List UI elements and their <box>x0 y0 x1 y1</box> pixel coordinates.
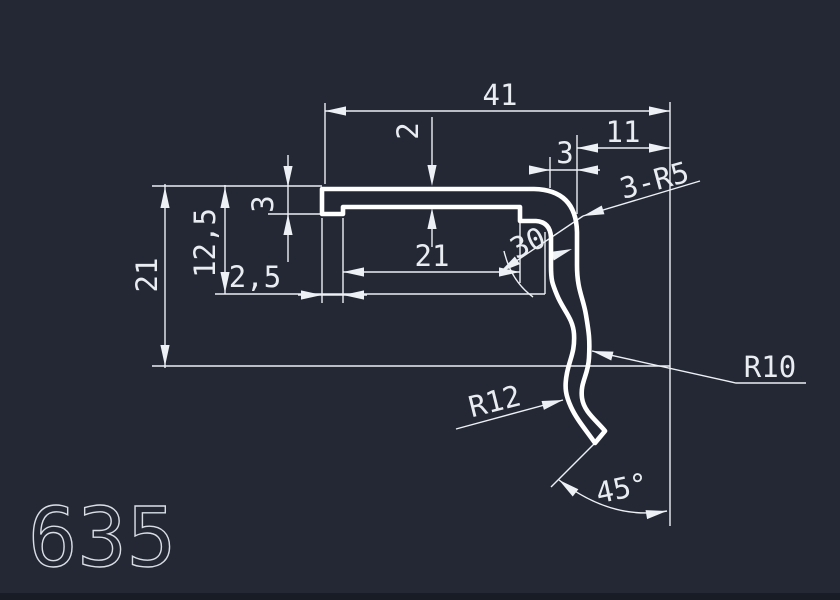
dim-21-mid-label: 21 <box>415 239 450 273</box>
dim-21-left-label: 21 <box>130 258 164 293</box>
dim-3-left-label: 3 <box>246 195 280 212</box>
dim-12-5-label: 12,5 <box>188 208 222 278</box>
dim-2-5-label: 2,5 <box>229 260 281 294</box>
part-number: 635 <box>28 491 176 586</box>
dim-r10-label: R10 <box>744 350 796 384</box>
dim-11-label: 11 <box>606 115 641 149</box>
dim-2-label: 2 <box>391 122 425 139</box>
cad-viewport[interactable]: 41 11 3 2 3-R5 21 12,5 3 2,5 21 30 R12 R… <box>0 0 840 600</box>
drawing-canvas[interactable]: 41 11 3 2 3-R5 21 12,5 3 2,5 21 30 R12 R… <box>0 0 840 600</box>
dim-41-label: 41 <box>483 78 518 112</box>
canvas-bottom-edge <box>0 593 840 600</box>
dim-3-top-label: 3 <box>556 136 573 170</box>
